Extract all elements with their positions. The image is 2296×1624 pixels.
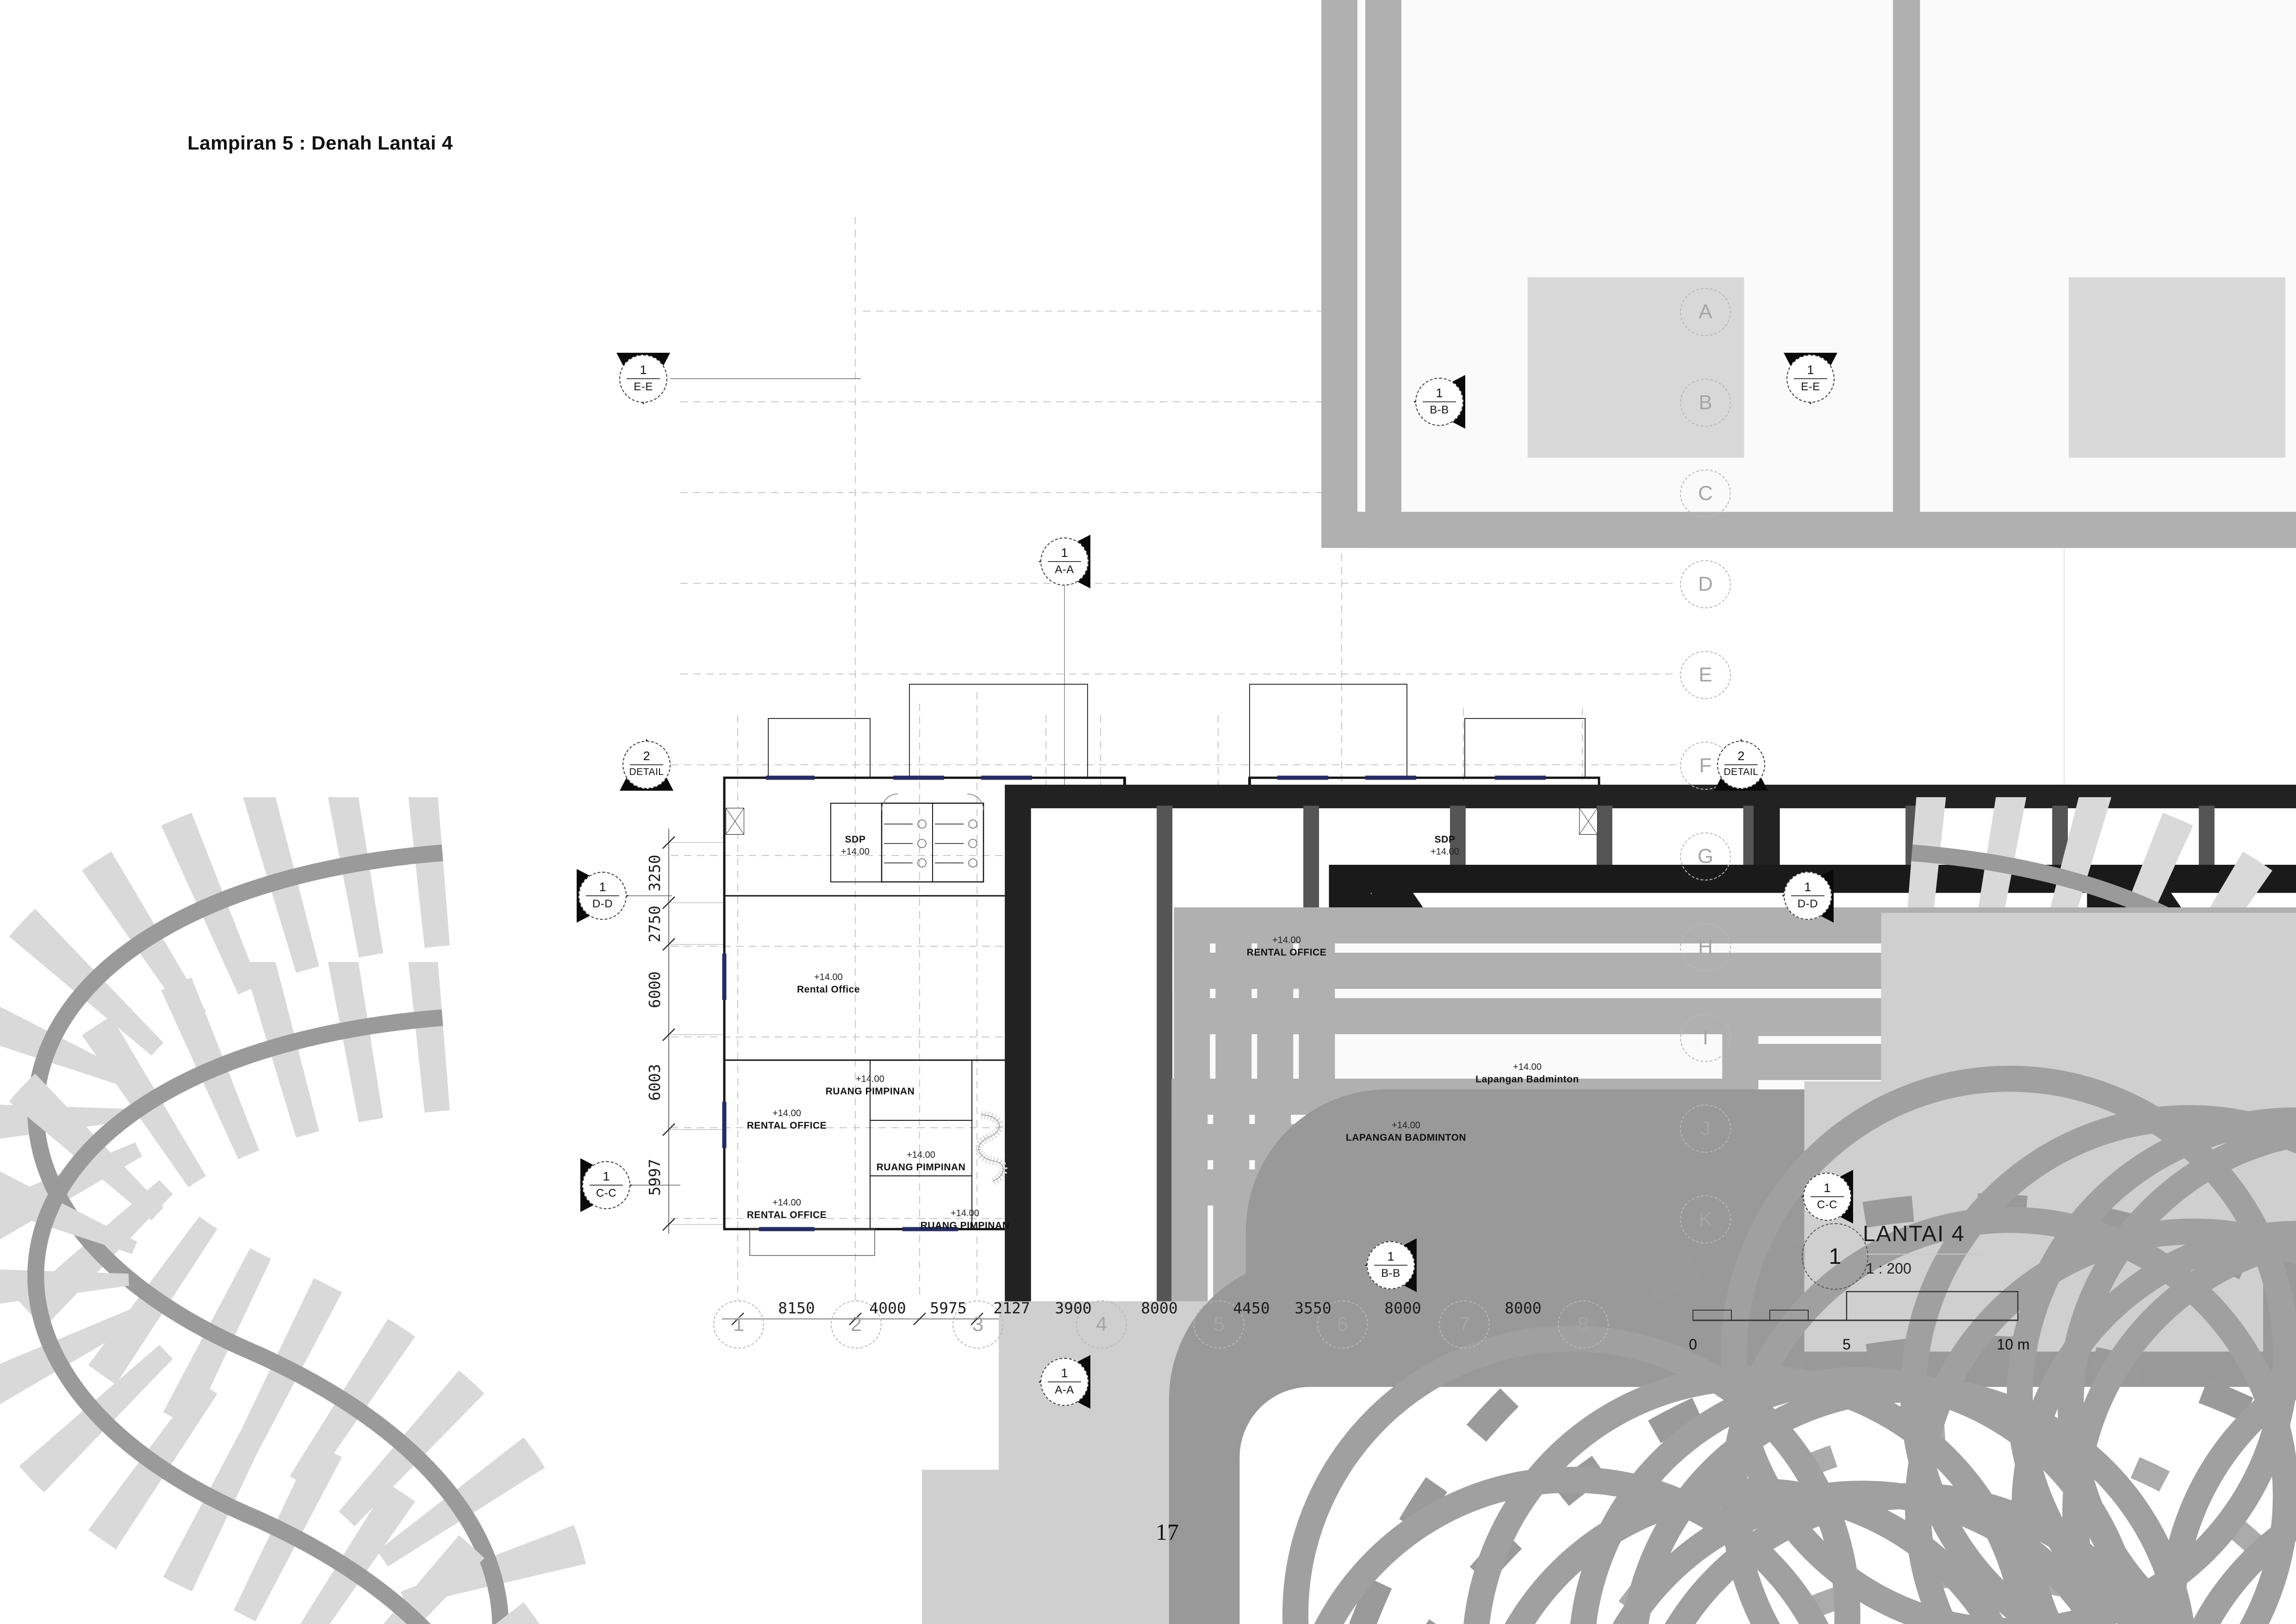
grid-bubble-C: C xyxy=(1680,469,1731,518)
room-label-rental-office-right: +14.00RENTAL OFFICE xyxy=(1213,934,1361,959)
room-label-sdp-right: SDP+14.00 xyxy=(1371,833,1519,858)
section-marker-aa-top: 1A-A xyxy=(1040,537,1089,586)
dim-bottom-8: 8000 xyxy=(1370,1299,1435,1317)
section-marker-ee-left: 1E-E xyxy=(619,355,667,403)
view-title: LANTAI 4 xyxy=(1863,1221,1965,1247)
dim-bottom-3: 2127 xyxy=(979,1299,1044,1317)
view-scale: 1 : 200 xyxy=(1866,1260,1911,1277)
section-marker-aa-bottom: 1A-A xyxy=(1040,1358,1089,1406)
grid-bubble-B: B xyxy=(1680,379,1731,427)
section-marker-cc-right: 1C-C xyxy=(1803,1173,1851,1221)
drawing-sheet: Lampiran 5 : Denah Lantai 4 17 1 LANTAI … xyxy=(0,0,2296,1624)
shaft xyxy=(726,808,744,835)
shaft xyxy=(1579,808,1597,835)
dim-left-2: 6000 xyxy=(646,953,661,1027)
room-label-ruang-pimpinan-1: +14.00RUANG PIMPINAN xyxy=(796,1073,944,1098)
scalebar-label-5: 5 xyxy=(1823,1336,1870,1353)
page-number: 17 xyxy=(1139,1518,1195,1545)
dim-left-4: 5997 xyxy=(646,1140,661,1214)
grid-bubble-H: H xyxy=(1680,923,1731,971)
section-marker-dd-right: 1D-D xyxy=(1784,872,1832,920)
grid-bubble-7: 7 xyxy=(1439,1300,1490,1349)
room-label-badminton-right: +14.00Lapangan Badminton xyxy=(1453,1061,1601,1086)
grid-bubble-A: A xyxy=(1680,288,1731,336)
dim-bottom-5: 8000 xyxy=(1127,1299,1192,1317)
grid-bubble-J: J xyxy=(1680,1105,1731,1153)
dim-bottom-9: 8000 xyxy=(1491,1299,1556,1317)
room-label-rental-office-1: +14.00RENTAL OFFICE xyxy=(713,1107,861,1132)
room-label-ruang-pimpinan-2: +14.00RUANG PIMPINAN xyxy=(847,1149,995,1174)
dim-bottom-6: 4450 xyxy=(1219,1299,1284,1317)
detail-marker-left: 2DETAIL xyxy=(622,741,671,789)
room-label-ruang-pimpinan-3: +14.00RUANG PIMPINAN xyxy=(891,1207,1039,1232)
document-title: Lampiran 5 : Denah Lantai 4 xyxy=(187,132,453,154)
grid-bubble-8: 8 xyxy=(1558,1300,1609,1349)
view-title-rule xyxy=(1866,1254,1982,1255)
dim-bottom-1: 4000 xyxy=(855,1299,920,1317)
grid-bubble-D: D xyxy=(1680,560,1731,608)
view-number-bubble: 1 xyxy=(1802,1223,1868,1290)
dim-bottom-0: 8150 xyxy=(764,1299,829,1317)
dim-bottom-2: 5975 xyxy=(916,1299,981,1317)
scalebar-label-0: 0 xyxy=(1670,1336,1716,1353)
view-number: 1 xyxy=(1829,1244,1842,1269)
dim-left-3: 6003 xyxy=(646,1045,661,1119)
grid-bubble-K: K xyxy=(1680,1195,1731,1243)
dim-left-1: 2750 xyxy=(646,887,661,961)
detail-marker-right: 2DETAIL xyxy=(1717,741,1765,789)
dim-bottom-4: 3900 xyxy=(1041,1299,1106,1317)
room-label-rental-office-mid: +14.00Rental Office xyxy=(754,971,902,996)
section-marker-dd-left: 1D-D xyxy=(579,872,627,920)
room-label-badminton-left: +14.00LAPANGAN BADMINTON xyxy=(1332,1119,1480,1144)
grid-bubble-1: 1 xyxy=(713,1300,764,1349)
grid-bubble-I: I xyxy=(1680,1014,1731,1062)
room-label-rental-office-2: +14.00RENTAL OFFICE xyxy=(713,1197,861,1221)
grid-bubble-G: G xyxy=(1680,832,1731,881)
section-marker-cc-left: 1C-C xyxy=(582,1161,630,1209)
section-marker-bb-top: 1B-B xyxy=(1415,378,1463,426)
cores-and-furniture xyxy=(0,0,2296,1624)
room-label-sdp-left: SDP+14.00 xyxy=(781,833,929,858)
grid-bubble-E: E xyxy=(1680,651,1731,699)
dim-bottom-7: 3550 xyxy=(1281,1299,1345,1317)
section-marker-bb-bottom: 1B-B xyxy=(1367,1241,1415,1289)
floor-plan-linework xyxy=(0,0,2296,1624)
scalebar-label-10m: 10 m xyxy=(1990,1336,2036,1353)
section-marker-ee-right: 1E-E xyxy=(1786,355,1835,403)
